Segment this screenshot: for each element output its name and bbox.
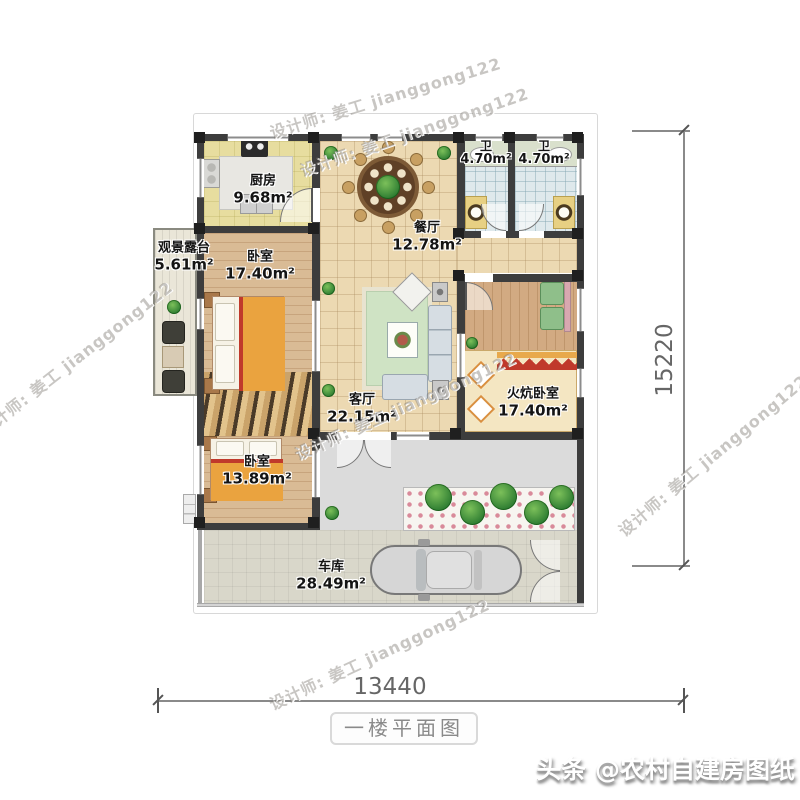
wall-pier [572,132,583,143]
door-gap [519,231,544,238]
blanket-icon [239,297,285,391]
floor-plan-page: 厨房 9.68m² 餐厅 12.78m² 卫 4.70m² 卫 4.70m² 观… [0,0,800,800]
washbasin-icon [553,196,575,229]
room-name: 火炕卧室 [498,387,568,402]
sofa-right [428,305,452,382]
branding-watermark: 头条 @农村自建房图纸 [480,750,795,786]
room-area: 9.68m² [233,189,292,206]
wall-pier [572,428,583,439]
wall-kang-bottom [457,432,584,440]
room-name: 卫 [518,140,569,153]
wall-bedroom-bottom-bottom [197,523,320,530]
car-mirror [418,539,430,546]
side-table-icon [432,282,448,302]
dining-chair [342,181,355,194]
room-label-bath-left: 卫 4.70m² [460,140,511,168]
car-roof [426,551,472,589]
plant-icon [425,484,452,511]
room-area: 4.70m² [518,153,569,168]
wall-pier [453,270,464,281]
plant-icon [466,337,478,349]
window [396,432,430,440]
room-name: 卧室 [222,455,292,470]
fence-left [198,530,202,604]
sink-icon [203,159,220,188]
door-leaf [311,188,313,222]
wall-pier [194,223,205,234]
pillow-icon [216,441,244,456]
pillow-icon [215,303,235,341]
wall-pier [572,270,583,281]
car-mirror [418,594,430,601]
wall-pier [308,223,319,234]
plant-icon [524,500,549,525]
room-label-terrace: 观景露台 5.61m² [154,241,213,272]
designer-watermark: 设计师: 姜工 jianggong122 [612,368,800,541]
plant-icon [167,300,181,314]
plant-icon [437,146,451,160]
kang-sofa-cushion [540,307,564,330]
dining-chair [422,181,435,194]
wall-pier [194,517,205,528]
kang-sofa-back [564,280,571,332]
room-name: 餐厅 [392,221,462,236]
room-label-bedroom-bottom: 卧室 13.89m² [222,455,292,486]
dining-chair [410,153,423,166]
plant-icon [325,506,339,520]
room-label-kang-bedroom: 火炕卧室 17.40m² [498,387,568,418]
plant-icon [549,485,574,510]
room-name: 厨房 [233,174,292,189]
kang-cushion-icon [467,395,495,423]
designer-watermark: 设计师: 姜工 jianggong122 [0,274,177,441]
bed-left [212,296,284,390]
window [577,368,584,398]
room-area: 28.49m² [296,575,366,592]
window [312,300,320,372]
room-name: 卧室 [225,250,295,265]
pillow-icon [215,345,235,383]
room-name: 车库 [296,560,366,575]
wall-pier [194,132,205,143]
plan-caption: 一楼平面图 [330,712,478,745]
plant-icon [322,282,335,295]
car-windshield [416,549,426,591]
terrace-door [197,298,204,330]
room-name: 卫 [460,140,511,153]
wall-pier [308,517,319,528]
door-gap [465,274,493,282]
terrace-table-icon [162,346,184,368]
dim-height-label: 15220 [652,310,676,410]
window [577,158,584,196]
room-area: 12.78m² [392,236,462,253]
coffee-table-icon [387,322,418,358]
wall-pier [450,428,461,439]
window [197,445,204,495]
room-area: 17.40m² [498,402,568,419]
wall-pier [308,132,319,143]
room-area: 4.70m² [460,153,511,168]
dining-chair [354,209,367,222]
window [577,288,584,332]
kang-sofa-cushion [540,282,564,305]
door-leaf [465,282,467,310]
room-label-kitchen: 厨房 9.68m² [233,174,292,205]
room-label-garage: 车库 28.49m² [296,560,366,591]
room-name: 观景露台 [154,241,213,256]
room-label-bath-right: 卫 4.70m² [518,140,569,168]
room-label-dining: 餐厅 12.78m² [392,221,462,252]
fence-bottom [197,603,584,607]
dim-line-right [683,131,685,566]
car-icon [370,538,522,602]
wall-pier [572,228,583,239]
room-area: 17.40m² [225,265,295,282]
window [197,158,204,198]
room-area: 13.89m² [222,470,292,487]
room-label-bedroom-left: 卧室 17.40m² [225,250,295,281]
door-gap [481,231,506,238]
table-centerpiece-plant-icon [376,175,400,199]
terrace-chair-icon [162,370,185,393]
car-rear-window [474,550,482,590]
terrace-chair-icon [162,321,185,344]
door-gap [312,188,320,222]
room-area: 5.61m² [154,256,213,273]
plant-icon [490,483,517,510]
dim-line-bottom [157,700,683,702]
wall-kitchen-bottom [197,226,320,233]
plant-icon [460,500,485,525]
